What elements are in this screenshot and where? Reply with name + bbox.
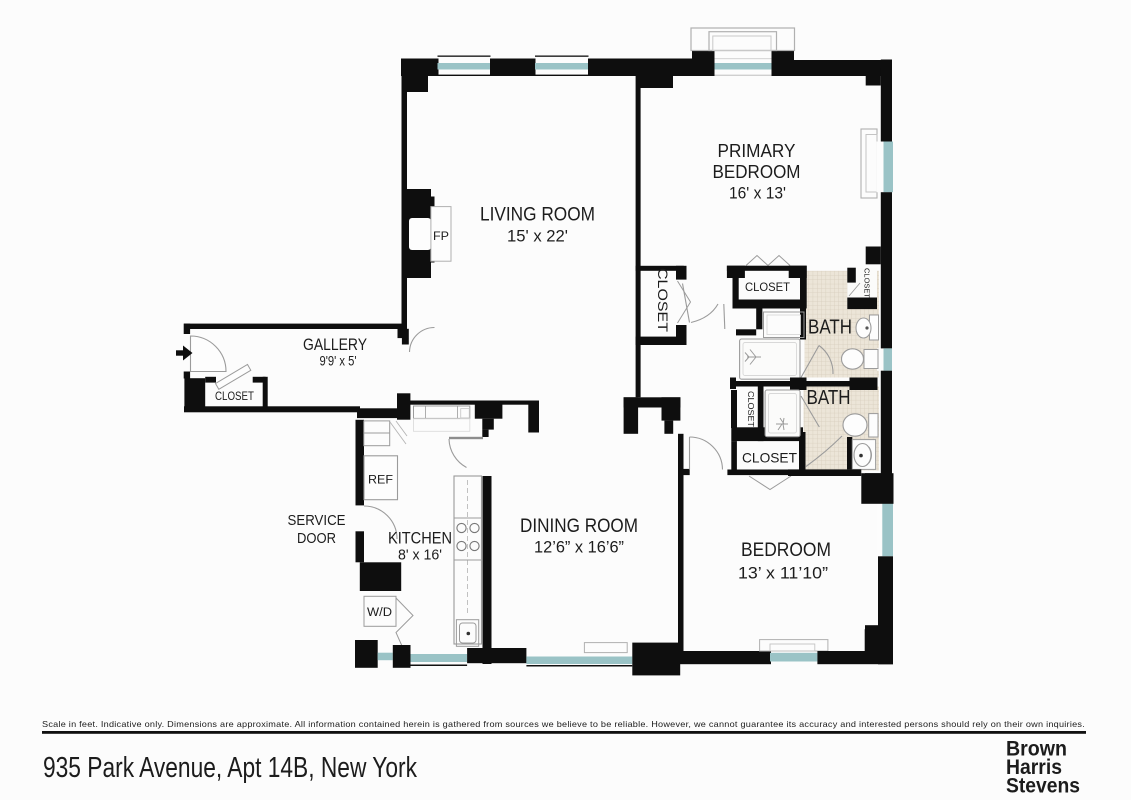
svg-text:SERVICE: SERVICE — [288, 512, 346, 529]
svg-text:CLOSET: CLOSET — [742, 451, 798, 466]
svg-text:12’6” x 16’6”: 12’6” x 16’6” — [534, 539, 624, 557]
svg-text:8' x 16': 8' x 16' — [398, 548, 442, 564]
svg-text:13’ x 11’10”: 13’ x 11’10” — [738, 565, 828, 583]
svg-text:DINING ROOM: DINING ROOM — [520, 516, 638, 537]
svg-text:REF: REF — [368, 473, 393, 487]
svg-text:BEDROOM: BEDROOM — [713, 161, 801, 182]
svg-text:LIVING ROOM: LIVING ROOM — [480, 204, 595, 226]
svg-text:CLOSET: CLOSET — [863, 268, 872, 298]
svg-text:BATH: BATH — [807, 387, 851, 409]
svg-text:KITCHEN: KITCHEN — [388, 529, 452, 548]
svg-text:16' x 13': 16' x 13' — [729, 185, 786, 203]
svg-text:935 Park Avenue, Apt 14B, New: 935 Park Avenue, Apt 14B, New York — [43, 752, 418, 784]
svg-text:PRIMARY: PRIMARY — [718, 140, 796, 161]
svg-text:GALLERY: GALLERY — [303, 336, 367, 354]
svg-text:DOOR: DOOR — [297, 530, 336, 547]
svg-text:9'9' x 5': 9'9' x 5' — [320, 353, 357, 369]
svg-text:W/D: W/D — [367, 607, 392, 619]
svg-text:CLOSET: CLOSET — [745, 282, 790, 294]
svg-text:Stevens: Stevens — [1006, 774, 1080, 798]
svg-text:CLOSET: CLOSET — [746, 391, 756, 427]
svg-text:FP: FP — [433, 229, 449, 243]
svg-text:15' x 22': 15' x 22' — [507, 227, 568, 246]
svg-text:BEDROOM: BEDROOM — [741, 540, 831, 561]
svg-text:BATH: BATH — [808, 317, 852, 339]
svg-text:CLOSET: CLOSET — [655, 268, 671, 333]
svg-text:Scale in feet. Indicative only: Scale in feet. Indicative only. Dimensio… — [42, 719, 1085, 729]
svg-text:CLOSET: CLOSET — [215, 389, 254, 403]
